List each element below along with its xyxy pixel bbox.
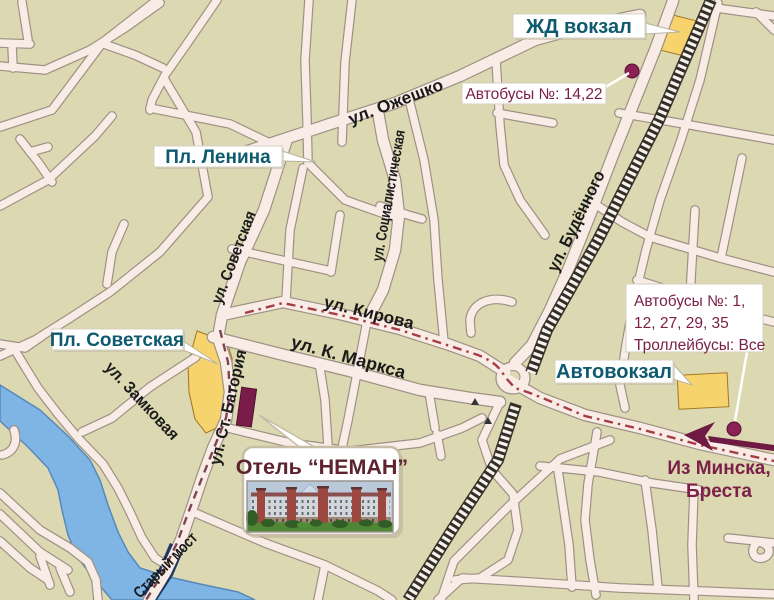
svg-text:Из Минска,: Из Минска, (667, 458, 770, 479)
svg-text:ЖД вокзал: ЖД вокзал (525, 16, 632, 38)
svg-text:Пл. Советская: Пл. Советская (50, 330, 184, 351)
svg-text:Отель “НЕМАН”: Отель “НЕМАН” (236, 455, 408, 479)
svg-text:12, 27, 29, 35: 12, 27, 29, 35 (634, 315, 729, 332)
svg-text:Автобусы №: 1,: Автобусы №: 1, (634, 293, 745, 310)
svg-text:Бреста: Бреста (686, 481, 752, 502)
svg-text:Автобусы №: 14,22: Автобусы №: 14,22 (465, 86, 602, 103)
svg-text:Автовокзал: Автовокзал (556, 361, 672, 383)
svg-text:Пл. Ленина: Пл. Ленина (165, 147, 271, 168)
svg-text:Троллейбусы: Все: Троллейбусы: Все (634, 337, 765, 354)
